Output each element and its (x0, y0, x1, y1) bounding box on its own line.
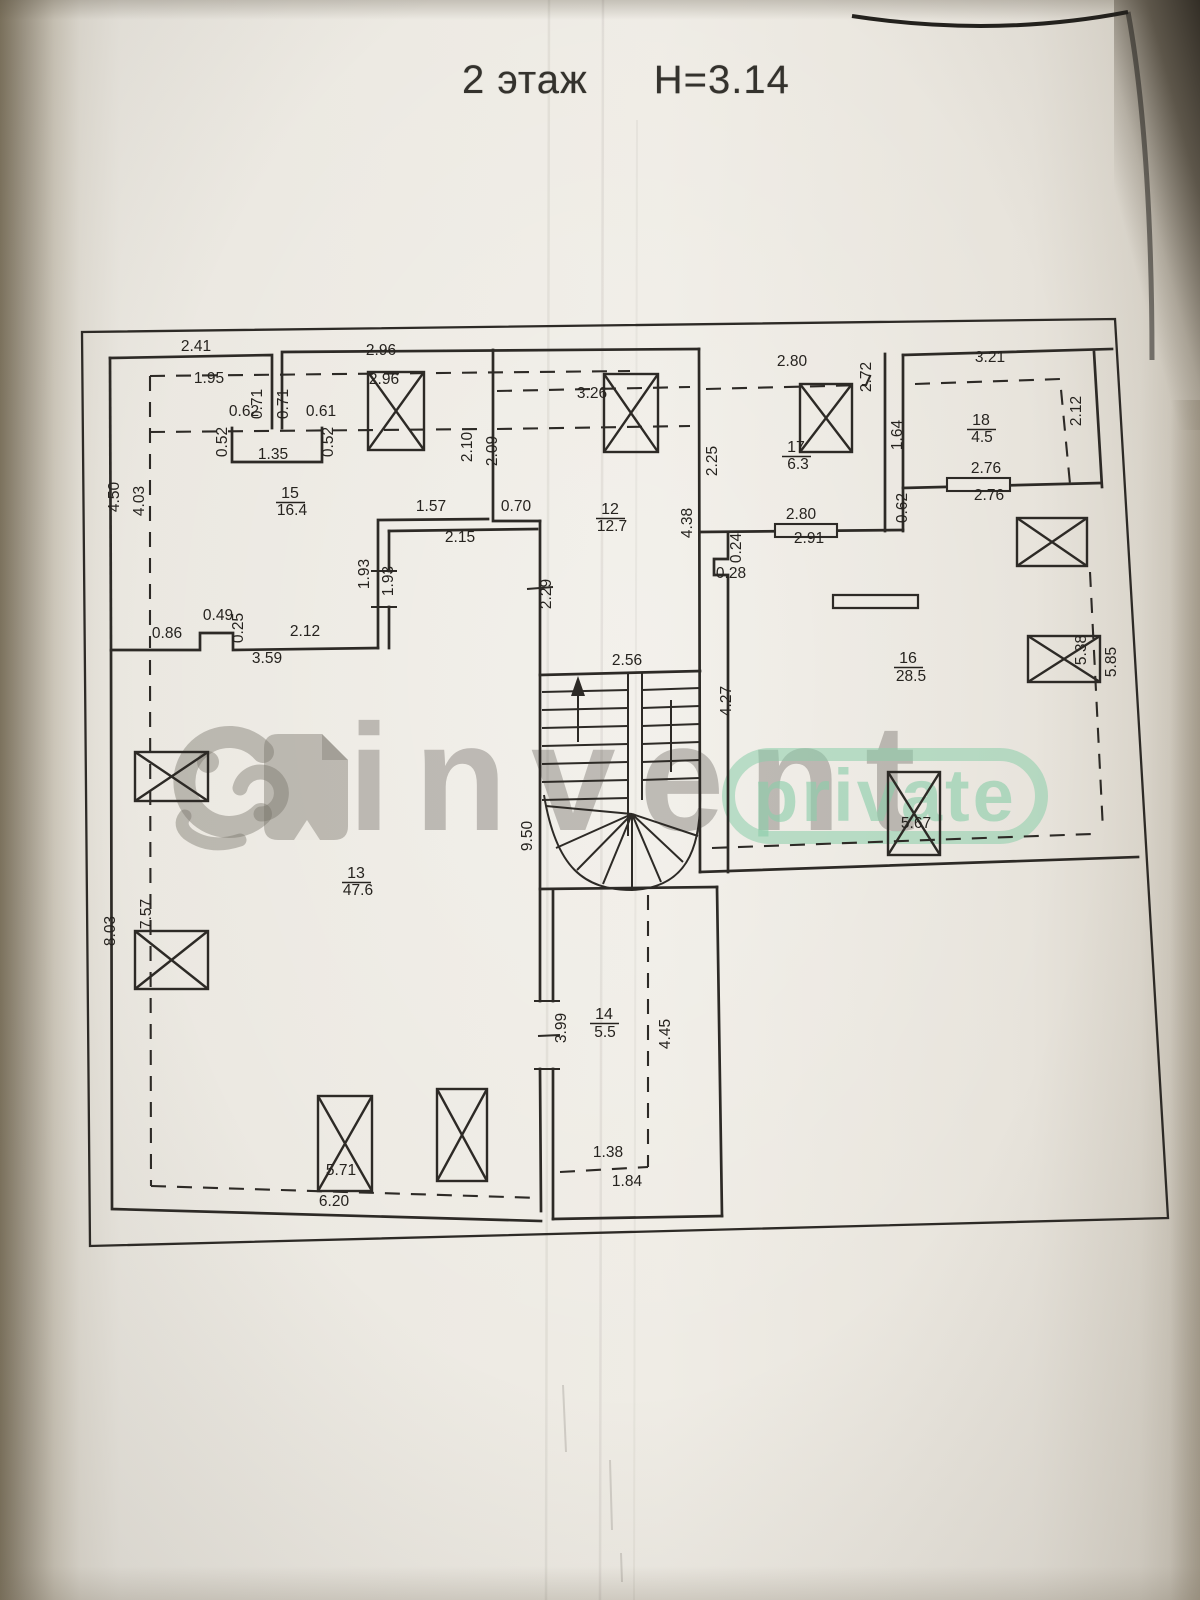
window-icon (800, 384, 852, 452)
room-number-label: 15 (281, 485, 299, 502)
dimension-label: 2.80 (786, 506, 817, 523)
dimension-label: 0.49 (203, 607, 233, 624)
dimension-label: 4.38 (679, 508, 696, 538)
staircase (542, 672, 700, 890)
dimension-label: 6.20 (319, 1193, 350, 1210)
dimension-label: 5.71 (326, 1162, 356, 1179)
dimension-label: 9.50 (519, 821, 536, 852)
dimension-label: 0.70 (501, 498, 532, 515)
window-icon (135, 931, 208, 989)
dimension-label: 1.35 (258, 446, 288, 463)
dimension-label: 0.28 (716, 565, 746, 582)
walls (82, 319, 1168, 1246)
dimension-label: 5.38 (1073, 635, 1090, 665)
dimension-label: 1.38 (593, 1144, 623, 1161)
dimension-label: 1.84 (612, 1173, 643, 1190)
dimension-label: 2.56 (612, 652, 642, 669)
dimension-label: 4.50 (106, 482, 123, 513)
dimension-label: 7.57 (138, 899, 155, 929)
door-sills (371, 478, 1010, 1069)
dimension-label: 0.71 (275, 389, 292, 419)
scanned-floor-plan-page: 2 этаж Н=3.14 invent private (0, 0, 1200, 1600)
dimension-label: 1.93 (356, 559, 373, 589)
dimension-label: 2.29 (538, 579, 555, 609)
room-area-label: 6.3 (787, 456, 809, 473)
dimension-label: 0.25 (230, 613, 247, 643)
room-number-label: 18 (972, 412, 990, 429)
room-area-label: 47.6 (343, 882, 373, 899)
window-icon (437, 1089, 487, 1181)
dimension-label: 2.76 (971, 460, 1001, 477)
dimension-label: 2.09 (484, 436, 501, 466)
dimension-label: 1.95 (194, 370, 224, 387)
dimension-label: 0.24 (728, 533, 745, 564)
dimension-label: 2.96 (369, 371, 399, 388)
dimension-label: 1.57 (416, 498, 446, 515)
dimension-label: 5.67 (901, 815, 931, 832)
dimension-label: 2.12 (1068, 396, 1085, 426)
dimension-label: 2.15 (445, 529, 475, 546)
dimension-label: 1.93 (380, 566, 397, 596)
room-number-label: 14 (595, 1006, 613, 1023)
room-area-label: 28.5 (896, 668, 926, 685)
window-icon (1017, 518, 1087, 566)
dimension-label: 0.52 (320, 427, 337, 457)
dimension-label: 4.03 (131, 486, 148, 516)
window-icon (604, 374, 658, 452)
window-icon (135, 752, 208, 801)
dimension-label: 0.52 (214, 427, 231, 457)
room-area-label: 16.4 (277, 502, 308, 519)
dimension-label: 8.03 (102, 916, 119, 946)
dimension-label: 3.26 (577, 385, 607, 402)
dimension-label: 5.85 (1103, 647, 1120, 677)
dimension-label: 3.59 (252, 650, 282, 667)
room-area-label: 12.7 (597, 518, 627, 535)
room-number-label: 17 (787, 439, 805, 456)
dimension-label: 2.12 (290, 623, 320, 640)
dimension-label: 0.61 (306, 403, 336, 420)
dimension-label: 2.96 (366, 342, 396, 359)
dimension-label: 0.62 (229, 403, 259, 420)
dimension-label: 2.91 (794, 530, 824, 547)
dimension-label: 3.99 (553, 1013, 570, 1043)
dimension-label: 3.21 (975, 349, 1005, 366)
dimension-label: 2.76 (974, 487, 1004, 504)
dimension-label: 0.86 (152, 625, 182, 642)
dimension-label: 2.41 (181, 338, 211, 355)
floor-plan-svg: 2.411.950.710.710.620.610.520.521.352.96… (0, 0, 1200, 1600)
dimension-label: 2.80 (777, 353, 808, 370)
room-number-label: 12 (601, 501, 619, 518)
dimension-label: 4.45 (657, 1019, 674, 1049)
dimension-label: 4.27 (718, 686, 735, 716)
labels-layer: 2.411.950.710.710.620.610.520.521.352.96… (102, 338, 1120, 1210)
dimension-label: 2.25 (704, 446, 721, 476)
room-number-label: 13 (347, 865, 365, 882)
room-area-label: 4.5 (971, 429, 993, 446)
room-area-label: 5.5 (594, 1024, 616, 1041)
dimension-label: 0.62 (894, 493, 911, 523)
windows (135, 372, 1100, 1191)
window-icon (888, 772, 940, 855)
dimension-label: 2.72 (858, 362, 875, 392)
dimension-label: 1.64 (889, 420, 906, 451)
dimension-label: 2.10 (459, 432, 476, 463)
room-number-label: 16 (899, 650, 917, 667)
